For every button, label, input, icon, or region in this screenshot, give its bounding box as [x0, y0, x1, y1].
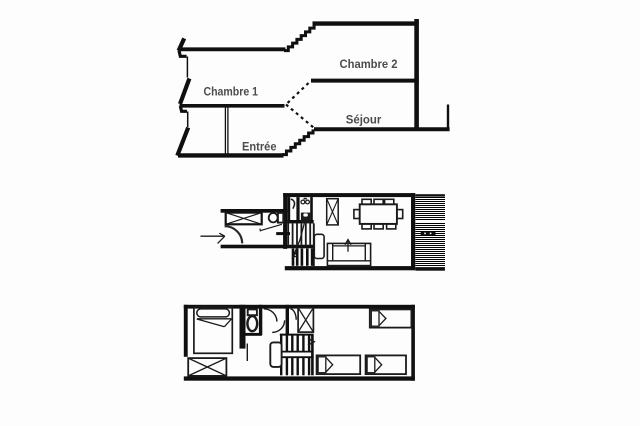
svg-text:Séjour: Séjour — [346, 113, 382, 126]
svg-text:Chambre 1: Chambre 1 — [204, 85, 259, 98]
svg-text:Entrée: Entrée — [242, 141, 277, 154]
svg-text:Chambre 2: Chambre 2 — [340, 58, 398, 71]
